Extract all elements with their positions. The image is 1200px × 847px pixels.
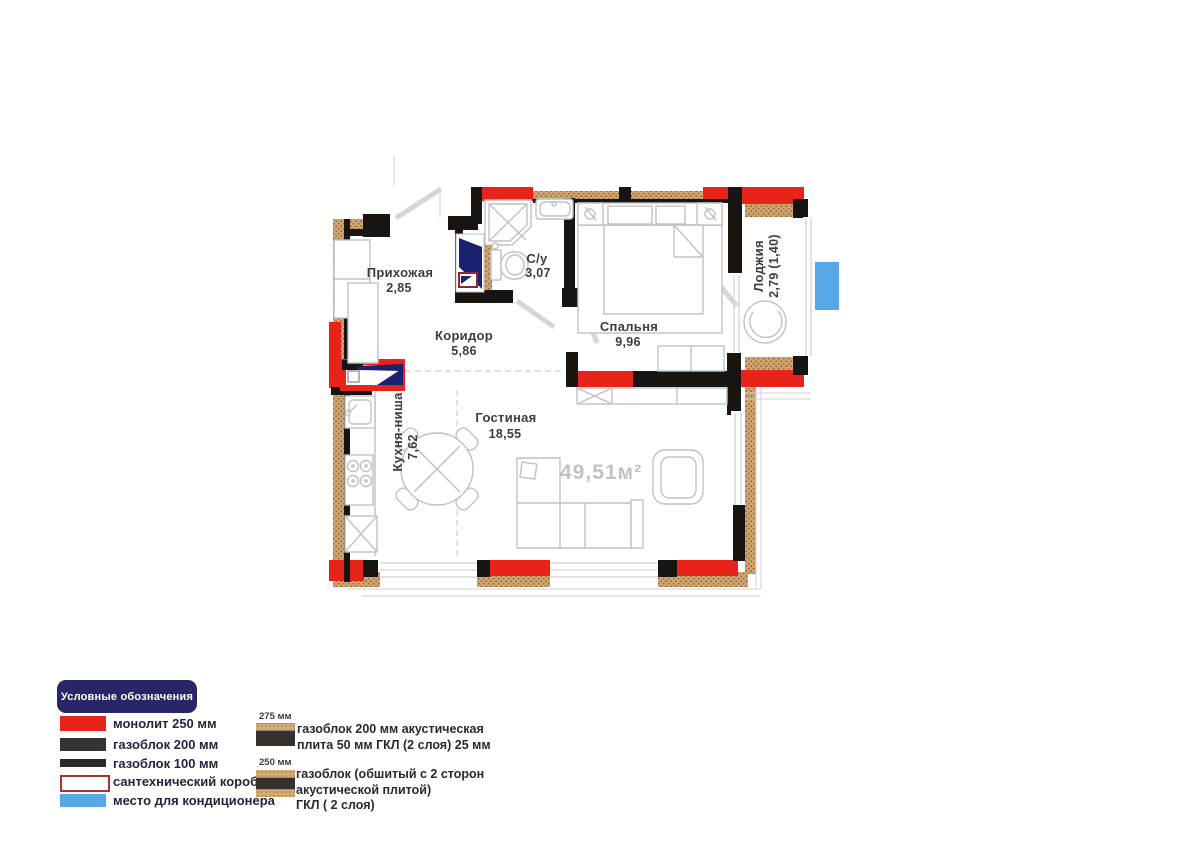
- wall-type-2-size: 250 мм: [259, 757, 292, 768]
- armchair: [653, 450, 703, 504]
- swatch-gasblock-100: [60, 759, 106, 767]
- wall-type-2-label: газоблок (обшитый с 2 сторон акустическо…: [296, 767, 484, 814]
- entrance-door: [396, 189, 441, 218]
- swatch-monolith: [60, 716, 106, 731]
- total-area-watermark: 49,51м²: [560, 461, 642, 484]
- legend-title: Условные обозначения: [57, 680, 197, 713]
- label-loggia: Лоджия: [751, 240, 766, 292]
- legend-item-gasblock-100: газоблок 100 мм: [113, 756, 218, 772]
- tv-stand: [577, 388, 727, 404]
- label-bathroom: С/у: [526, 251, 548, 266]
- legend-item-ac-place: место для кондиционера: [113, 793, 275, 809]
- label-bathroom-area: 3,07: [525, 266, 551, 280]
- label-kitchen: Кухня-ниша: [390, 392, 405, 472]
- nightstand: [697, 203, 722, 225]
- dresser: [658, 346, 724, 371]
- wall-type-2-swatch: [256, 770, 295, 797]
- label-living-area: 18,55: [489, 427, 522, 441]
- bed: [578, 203, 722, 333]
- kitchen-counter: [345, 392, 377, 556]
- label-corridor-area: 5,86: [451, 344, 477, 358]
- swatch-sanitary-box: [60, 775, 110, 792]
- loggia-chair: [744, 301, 786, 343]
- floor-plan-page: 49,51м² Прихожая 2,85 С/у 3,07 Коридор 5…: [0, 0, 1200, 847]
- label-living: Гостиная: [475, 410, 536, 425]
- wall-type-1-swatch: [256, 723, 295, 746]
- label-loggia-area: 2,79 (1,40): [767, 234, 781, 298]
- label-kitchen-area: 7,62: [406, 434, 420, 460]
- shower-cabin: [485, 200, 531, 245]
- legend-item-gasblock-200: газоблок 200 мм: [113, 737, 218, 753]
- wall-type-1-label: газоблок 200 мм акустическая плита 50 мм…: [297, 722, 491, 753]
- legend-item-monolith: монолит 250 мм: [113, 716, 217, 732]
- bathroom-sink: [536, 199, 573, 219]
- ac-place: [815, 262, 839, 310]
- bathroom-door: [517, 301, 554, 327]
- swatch-ac-place: [60, 794, 106, 807]
- legend-item-sanitary-box: сантехнический короб: [113, 774, 258, 790]
- label-hallway-area: 2,85: [386, 281, 412, 295]
- wall-type-1-size: 275 мм: [259, 711, 292, 722]
- swatch-gasblock-200: [60, 738, 106, 751]
- sanitary-shaft-bathroom: [456, 234, 484, 292]
- sanitary-shaft-kitchen: [342, 360, 403, 388]
- label-bedroom-area: 9,96: [615, 335, 641, 349]
- label-corridor: Коридор: [435, 328, 493, 343]
- label-bedroom: Спальня: [600, 319, 658, 334]
- label-hallway: Прихожая: [367, 265, 434, 280]
- toilet: [491, 243, 528, 280]
